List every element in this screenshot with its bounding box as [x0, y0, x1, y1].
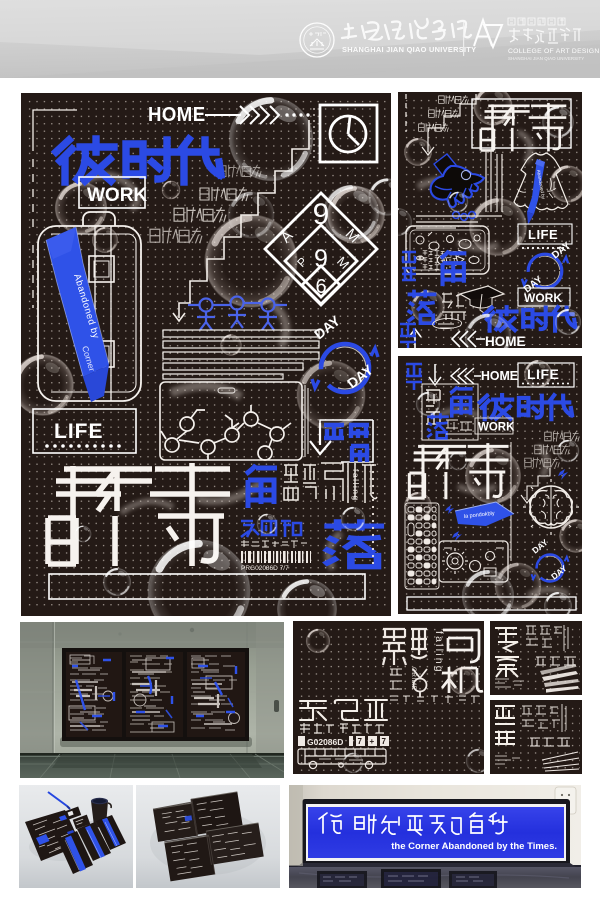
svg-text:7: 7	[358, 737, 363, 746]
svg-text:PRG02086D 7/7: PRG02086D 7/7	[241, 565, 289, 572]
svg-text:HOME: HOME	[481, 369, 518, 383]
svg-text:COLLEGE OF ART DESIGN: COLLEGE OF ART DESIGN	[508, 48, 600, 55]
svg-text:LIFE: LIFE	[54, 420, 104, 443]
svg-text:+: +	[370, 737, 375, 746]
svg-text:falling: falling	[433, 631, 445, 674]
svg-text:7: 7	[382, 737, 387, 746]
svg-text:6: 6	[315, 276, 326, 298]
svg-text:G02086D: G02086D	[307, 737, 343, 747]
svg-text:9: 9	[314, 245, 328, 273]
svg-text:SHANGHAI JIAN QIAO UNIVERSITY: SHANGHAI JIAN QIAO UNIVERSITY	[342, 45, 476, 54]
svg-text:WORK: WORK	[524, 291, 562, 305]
svg-text:SHANGHAI JIAN QIAO UNIVERSITY: SHANGHAI JIAN QIAO UNIVERSITY	[508, 56, 584, 61]
svg-text:LIFE: LIFE	[527, 366, 559, 382]
svg-text:HOME: HOME	[148, 104, 206, 126]
svg-text:LIFE: LIFE	[528, 227, 558, 242]
svg-text:the Corner Abandoned by the Ti: the Corner Abandoned by the Times.	[391, 841, 557, 852]
svg-text:falling: falling	[351, 469, 361, 502]
svg-text:WORK: WORK	[87, 185, 147, 206]
svg-text:WORK: WORK	[478, 422, 515, 434]
